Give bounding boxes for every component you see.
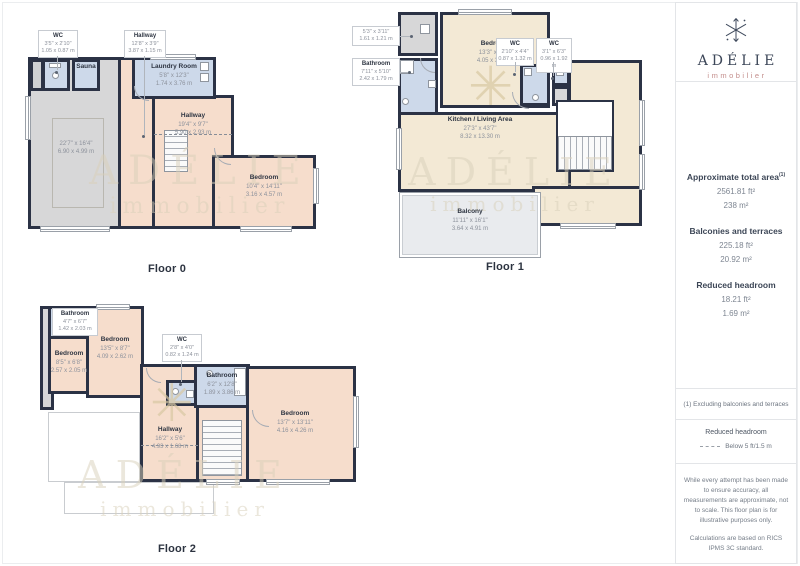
room-name: Bathroom	[354, 61, 398, 69]
total-area-title-text: Approximate total area	[687, 172, 779, 182]
toilet-icon	[532, 94, 539, 101]
window-icon	[266, 479, 330, 485]
sink-icon	[524, 68, 532, 76]
floor0-stairs	[164, 130, 188, 172]
room-dim-ft: 7'11" x 5'10"	[354, 69, 398, 76]
callout-dot	[55, 71, 58, 74]
callout-leader	[515, 62, 516, 72]
room-dim-m: 0.96 x 1.92 m	[538, 56, 570, 70]
info-sidebar: ADÉLIE immobilier Approximate total area…	[675, 2, 797, 564]
room-dim-ft: 5'3" x 3'11"	[354, 29, 398, 36]
floor0-sauna-room	[72, 59, 100, 91]
floor0-caption: Floor 0	[148, 263, 186, 275]
snowflake-icon	[723, 30, 749, 47]
wc-callout: WC 2'8" x 4'0" 0.82 x 1.24 m	[162, 334, 202, 362]
toilet-icon	[172, 388, 179, 395]
room-dim-ft: 12'8" x 3'9"	[126, 41, 164, 48]
balconies-m: 20.92 m²	[676, 255, 796, 264]
window-icon	[639, 154, 645, 190]
room-dim-ft: 2'8" x 4'0"	[164, 345, 200, 352]
room-dim-ft: 3'5" x 2'10"	[40, 41, 76, 48]
sink-icon	[186, 390, 194, 398]
room-name: WC	[538, 41, 570, 49]
footnote: (1) Excluding balconies and terraces	[676, 389, 796, 420]
floor0-bedroom-room	[212, 155, 316, 229]
dashed-line-icon	[700, 446, 720, 447]
total-area-m: 238 m²	[676, 201, 796, 210]
room-dim-m: 2.42 x 1.79 m	[354, 76, 398, 83]
callout-leader	[400, 36, 410, 37]
toilet-icon	[402, 98, 409, 105]
legend-item-text: Below 5 ft/1.5 m	[725, 443, 772, 450]
floor1-storage-room	[398, 12, 438, 56]
callout-dot	[179, 383, 182, 386]
brand-name: ADÉLIE	[676, 53, 796, 69]
floor0-parking-outline	[52, 118, 104, 208]
storage-callout: 5'3" x 3'11" 1.61 x 1.21 m	[352, 26, 400, 46]
callout-leader	[144, 56, 145, 135]
floor2-stairs	[202, 420, 242, 476]
callout-dot	[513, 73, 516, 76]
floor1-stairs	[558, 136, 612, 170]
window-icon	[240, 226, 292, 232]
wc-callout: WC 3'5" x 2'10" 1.05 x 0.87 m	[38, 30, 78, 58]
reduced-headroom-line	[154, 134, 232, 135]
room-dim-m: 1.61 x 1.21 m	[354, 36, 398, 43]
headroom-group: Reduced headroom 18.21 ft² 1.69 m²	[676, 280, 796, 318]
floor2-caption: Floor 2	[158, 543, 196, 555]
room-name: Bathroom	[54, 311, 96, 319]
window-icon	[96, 304, 130, 310]
callout-leader	[400, 72, 408, 73]
room-dim-m: 1.05 x 0.87 m	[40, 48, 76, 55]
window-icon	[206, 479, 240, 485]
room-dim-ft: 4'7" x 6'7"	[54, 319, 96, 326]
headroom-ft: 18.21 ft²	[676, 295, 796, 304]
bathtub-icon	[234, 368, 246, 396]
dryer-icon	[200, 73, 209, 82]
reduced-headroom-line	[141, 445, 198, 446]
window-icon	[353, 396, 359, 448]
legend-title: Reduced headroom	[676, 429, 796, 436]
bathroom-callout: Bathroom 7'11" x 5'10" 2.42 x 1.79 m	[352, 58, 400, 86]
legend-row: Below 5 ft/1.5 m	[676, 443, 796, 450]
footnote-marker: (1)	[779, 172, 785, 178]
brand-block: ADÉLIE immobilier	[676, 3, 796, 82]
total-area-title: Approximate total area(1)	[676, 172, 796, 182]
window-icon	[396, 128, 402, 170]
window-icon	[313, 168, 319, 204]
window-icon	[560, 223, 616, 229]
callout-dot	[410, 35, 413, 38]
balconies-group: Balconies and terraces 225.18 ft² 20.92 …	[676, 226, 796, 264]
room-dim-ft: 2'10" x 4'4"	[498, 49, 532, 56]
callout-leader	[553, 62, 554, 76]
floor2-bedroom-small-room	[48, 336, 90, 394]
brand-subtitle: immobilier	[676, 71, 796, 80]
room-name: Hallway	[126, 33, 164, 41]
cabinet-icon	[420, 24, 430, 34]
window-icon	[639, 100, 645, 146]
floorplan-page: 22'7" x 16'4" 6.90 x 4.99 m Sauna Laundr…	[0, 0, 800, 566]
window-icon	[40, 226, 110, 232]
sink-icon	[206, 370, 213, 377]
sink-icon	[428, 80, 436, 88]
room-name: WC	[164, 337, 200, 345]
total-area-group: Approximate total area(1) 2561.81 ft² 23…	[676, 172, 796, 210]
floor1-kitchen-room-c	[532, 186, 642, 226]
legend-block: Reduced headroom Below 5 ft/1.5 m	[676, 420, 796, 464]
floor1-balcony	[399, 192, 541, 258]
measurements-block: Approximate total area(1) 2561.81 ft² 23…	[676, 82, 796, 389]
room-name: WC	[498, 41, 532, 49]
room-dim-m: 1.42 x 2.03 m	[54, 326, 96, 333]
floor1-caption: Floor 1	[486, 261, 524, 273]
room-dim-m: 3.87 x 1.15 m	[126, 48, 164, 55]
hallway-callout: Hallway 12'8" x 3'9" 3.87 x 1.15 m	[124, 30, 166, 58]
floor2-terrace-outline	[48, 412, 140, 482]
window-icon	[458, 9, 512, 15]
cistern-icon	[49, 63, 61, 68]
balconies-ft: 225.18 ft²	[676, 241, 796, 250]
wc2-callout: WC 3'1" x 6'3" 0.96 x 1.92 m	[536, 38, 572, 73]
bathroom-a-callout: Bathroom 4'7" x 6'7" 1.42 x 2.03 m	[52, 308, 98, 336]
callout-leader	[181, 360, 182, 382]
headroom-title: Reduced headroom	[676, 280, 796, 290]
disclaimer-text: While every attempt has been made to ens…	[682, 476, 790, 526]
floor2-roof-outline	[64, 482, 214, 514]
callout-dot	[551, 77, 554, 80]
callout-leader	[57, 56, 58, 70]
balconies-title: Balconies and terraces	[676, 226, 796, 236]
calculations-text: Calculations are based on RICS IPMS 3C s…	[682, 534, 790, 554]
callout-dot	[142, 135, 145, 138]
washer-icon	[200, 62, 209, 71]
room-name: WC	[40, 33, 76, 41]
room-dim-m: 0.82 x 1.24 m	[164, 352, 200, 359]
room-dim-ft: 3'1" x 6'3"	[538, 49, 570, 56]
total-area-ft: 2561.81 ft²	[676, 187, 796, 196]
callout-dot	[408, 71, 411, 74]
disclaimer-block: While every attempt has been made to ens…	[676, 464, 796, 566]
window-icon	[25, 96, 31, 140]
headroom-m: 1.69 m²	[676, 309, 796, 318]
